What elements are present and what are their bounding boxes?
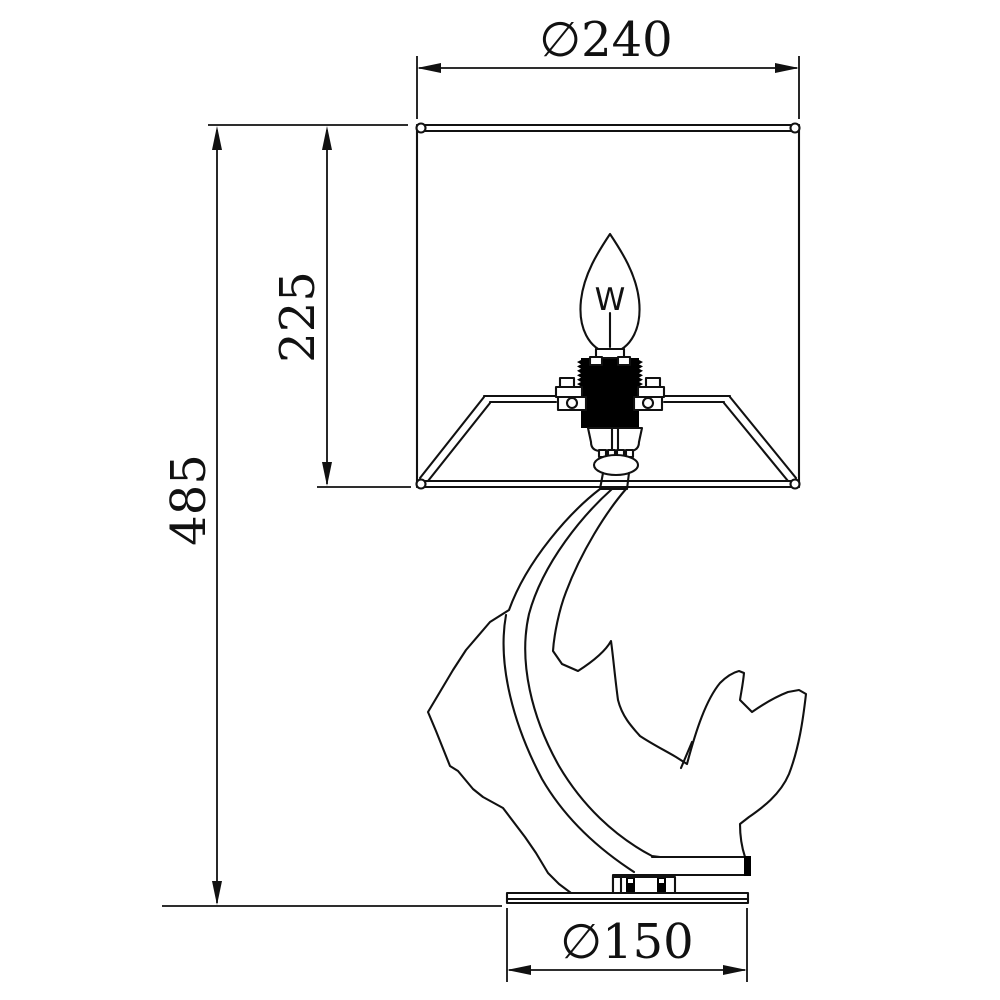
dimension-shade-diameter: ∅240	[417, 12, 799, 119]
socket-skirt	[588, 428, 642, 451]
socket-top-notch-right	[618, 357, 630, 365]
screw-slot	[659, 879, 664, 883]
bulb: W	[580, 234, 639, 365]
spider-right-diagonal-outer	[730, 397, 796, 478]
bracket-ring-left	[567, 398, 577, 408]
bracket-wing-left	[556, 387, 582, 397]
arrow-right-icon	[775, 63, 799, 73]
arrow-left-icon	[417, 63, 441, 73]
arrow-right-icon	[723, 965, 747, 975]
bracket-tab-left	[560, 378, 574, 387]
bracket-ring-right	[643, 398, 653, 408]
lamp-body	[428, 489, 806, 893]
lamp-technical-drawing: 485 225 ∅240 ∅150	[0, 0, 1000, 1000]
dimension-base-diameter: ∅150	[507, 908, 747, 982]
arrow-down-icon	[212, 881, 222, 905]
dimension-shade-height: 225	[270, 126, 411, 487]
base-plate	[507, 893, 748, 903]
spider-left-diagonal-inner	[428, 403, 490, 481]
dimension-label-150: ∅150	[560, 914, 693, 970]
dimension-label-225: 225	[270, 271, 326, 363]
screw-slot	[628, 879, 633, 883]
arrow-up-icon	[322, 126, 332, 150]
socket-body	[581, 358, 639, 428]
bracket-wing-right	[638, 387, 664, 397]
dimension-label-240: ∅240	[539, 12, 672, 68]
neck-knuckle	[594, 455, 638, 475]
shade-corner-bead	[791, 480, 800, 489]
arrow-left-icon	[507, 965, 531, 975]
dimension-label-485: 485	[161, 454, 217, 546]
dimension-total-height: 485	[161, 125, 502, 906]
body-foot-end-cap	[744, 856, 751, 876]
drawing-svg: 485 225 ∅240 ∅150	[0, 0, 1000, 1000]
socket-assembly	[556, 358, 664, 489]
spider-left-diagonal-outer	[420, 397, 484, 478]
shade-corner-bead	[791, 124, 800, 133]
socket-top-notch-left	[590, 357, 602, 365]
shade-corner-bead	[417, 480, 426, 489]
spider-right-diagonal-inner	[724, 403, 788, 481]
arrow-up-icon	[212, 126, 222, 150]
bracket-tab-right	[646, 378, 660, 387]
shade-corner-bead	[417, 124, 426, 133]
arrow-down-icon	[322, 462, 332, 486]
